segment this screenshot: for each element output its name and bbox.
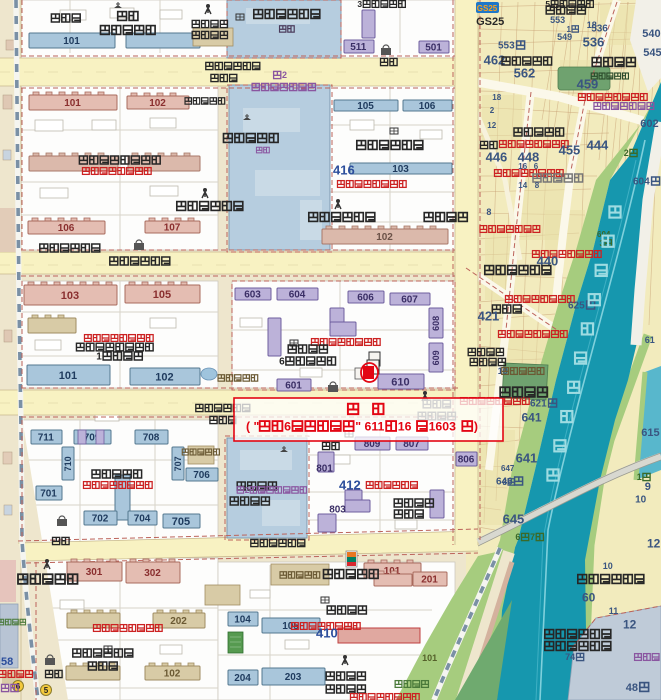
svg-text:801: 801: [316, 464, 333, 475]
svg-text:302: 302: [144, 568, 161, 579]
svg-text:645: 645: [503, 512, 525, 527]
svg-text:2: 2: [490, 106, 495, 115]
svg-text:608: 608: [431, 316, 441, 331]
svg-text:625: 625: [568, 301, 585, 312]
svg-text:105: 105: [153, 289, 171, 301]
svg-text:101: 101: [59, 370, 77, 382]
svg-text:1: 1: [96, 352, 102, 363]
svg-text:708: 708: [143, 433, 160, 444]
svg-text:455: 455: [559, 143, 581, 158]
svg-text:421: 421: [478, 309, 500, 324]
svg-text:6: 6: [279, 357, 285, 368]
svg-text:102: 102: [149, 98, 166, 109]
svg-text:10: 10: [603, 561, 613, 571]
svg-text:58: 58: [1, 656, 13, 668]
svg-text:102: 102: [164, 669, 181, 680]
svg-text:602: 602: [640, 118, 658, 130]
svg-text:603: 603: [244, 290, 261, 301]
svg-text:60: 60: [582, 590, 596, 604]
svg-text:74: 74: [565, 652, 575, 662]
svg-text:501: 501: [425, 43, 442, 54]
svg-text:610: 610: [391, 377, 409, 389]
svg-text:8: 8: [503, 478, 508, 487]
svg-text:106: 106: [58, 223, 75, 234]
svg-text:( ": ( ": [246, 419, 260, 433]
svg-text:545: 545: [643, 47, 661, 59]
svg-text:11: 11: [609, 606, 619, 616]
svg-text:202: 202: [170, 616, 187, 627]
svg-text:536: 536: [583, 35, 605, 50]
svg-text:9: 9: [645, 481, 651, 493]
svg-text:" 611: " 611: [355, 419, 384, 433]
svg-text:606: 606: [357, 293, 374, 304]
svg-text:540: 540: [642, 28, 660, 40]
svg-text:511: 511: [350, 42, 367, 53]
svg-text:553: 553: [550, 15, 565, 25]
svg-text:201: 201: [421, 575, 438, 586]
svg-text:562: 562: [514, 66, 536, 81]
svg-text:702: 702: [92, 514, 109, 525]
svg-text:711: 711: [38, 433, 55, 444]
svg-text:2: 2: [624, 148, 629, 158]
svg-text:106: 106: [419, 101, 436, 112]
svg-text:7: 7: [530, 532, 535, 542]
svg-text:2: 2: [282, 70, 287, 80]
svg-text:204: 204: [234, 673, 251, 684]
svg-text:549: 549: [557, 32, 572, 42]
svg-text:701: 701: [40, 489, 57, 500]
svg-text:601: 601: [285, 381, 302, 392]
svg-text:107: 107: [164, 223, 181, 234]
svg-text:705: 705: [172, 516, 190, 528]
svg-text:10: 10: [635, 495, 647, 506]
svg-text:536: 536: [591, 24, 608, 35]
svg-text:704: 704: [134, 514, 151, 525]
svg-text:410: 410: [316, 626, 338, 641]
svg-text:12: 12: [487, 121, 496, 130]
svg-text:104: 104: [234, 615, 251, 626]
svg-text:5: 5: [44, 686, 49, 695]
svg-text:446: 446: [486, 150, 508, 165]
svg-text:416: 416: [333, 163, 355, 178]
svg-text:GS25: GS25: [476, 16, 504, 28]
svg-text:102: 102: [155, 372, 173, 384]
svg-text:103: 103: [392, 164, 409, 175]
svg-text:61: 61: [645, 335, 655, 345]
svg-text:707: 707: [173, 456, 183, 471]
svg-text:GS25: GS25: [477, 4, 498, 13]
svg-text:607: 607: [401, 295, 418, 306]
svg-text:6: 6: [284, 419, 291, 433]
svg-text:12: 12: [647, 536, 661, 550]
svg-text:101: 101: [422, 653, 437, 663]
svg-text:): ): [474, 419, 478, 433]
svg-text:101: 101: [64, 98, 81, 109]
svg-text:12: 12: [623, 617, 637, 631]
svg-text:641: 641: [522, 410, 542, 424]
svg-text:105: 105: [357, 101, 374, 112]
svg-text:16: 16: [398, 419, 412, 433]
svg-text:14: 14: [518, 181, 527, 190]
svg-text:604: 604: [633, 177, 650, 188]
svg-text:641: 641: [516, 451, 538, 466]
svg-text:102: 102: [376, 232, 393, 243]
svg-text:706: 706: [193, 470, 210, 481]
svg-text:6: 6: [515, 532, 520, 542]
svg-text:1603: 1603: [429, 419, 457, 433]
svg-text:604: 604: [289, 290, 306, 301]
svg-text:103: 103: [61, 290, 79, 302]
svg-text:647: 647: [501, 464, 515, 473]
svg-text:412: 412: [339, 478, 361, 493]
svg-text:203: 203: [285, 672, 302, 683]
svg-text:2: 2: [245, 486, 250, 495]
svg-text:3: 3: [357, 0, 362, 9]
svg-text:301: 301: [86, 567, 103, 578]
svg-text:553: 553: [498, 41, 515, 52]
svg-text:48: 48: [626, 682, 638, 694]
svg-text:1: 1: [637, 472, 642, 482]
svg-text:710: 710: [63, 456, 73, 471]
svg-text:621: 621: [530, 399, 547, 410]
svg-text:806: 806: [458, 455, 475, 466]
svg-text:609: 609: [431, 350, 441, 365]
svg-text:101: 101: [63, 36, 80, 47]
svg-text:615: 615: [641, 427, 659, 439]
svg-text:459: 459: [577, 77, 599, 92]
svg-text:444: 444: [587, 138, 609, 153]
svg-text:8: 8: [486, 207, 491, 217]
svg-text:18: 18: [492, 93, 501, 102]
svg-text:8: 8: [535, 181, 540, 190]
